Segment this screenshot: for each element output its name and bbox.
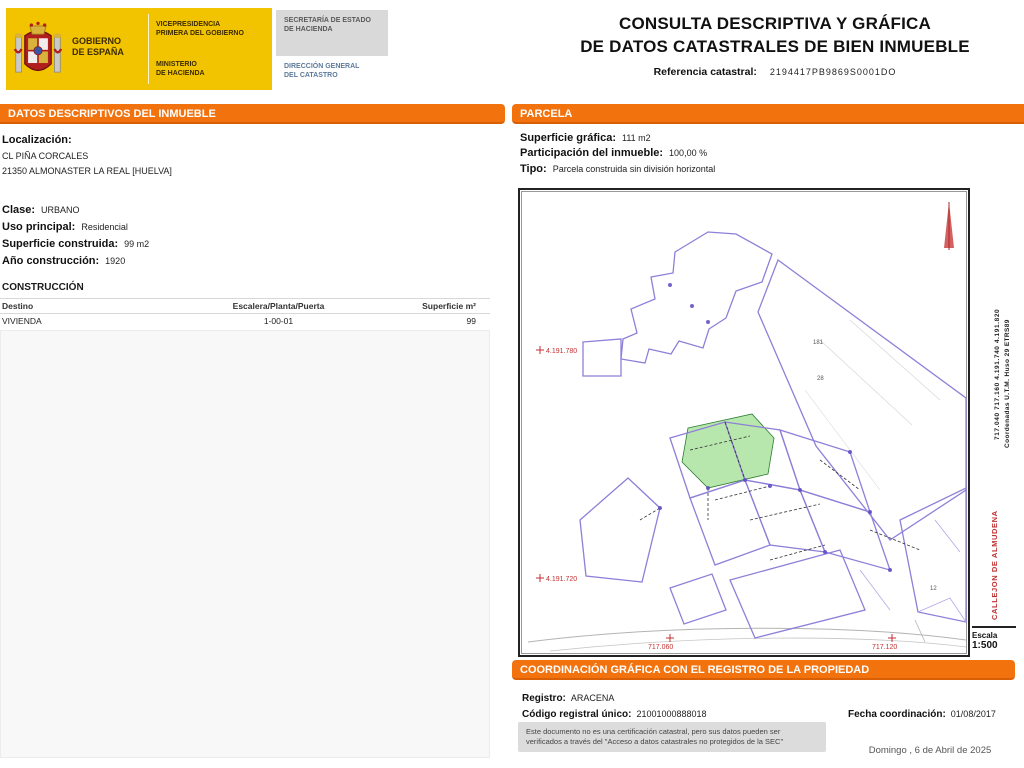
map-label-northing-lower: 4.191.720 (546, 576, 577, 583)
parcel-number-3: 12 (930, 586, 937, 592)
vicepresidencia-text: VICEPRESIDENCIA PRIMERA DEL GOBIERNO (156, 20, 244, 38)
street-side-label: CALLEJON DE ALMUDENA (990, 510, 999, 620)
section-bar-datos-descriptivos: DATOS DESCRIPTIVOS DEL INMUEBLE (0, 104, 505, 124)
spain-coat-of-arms-icon (12, 16, 64, 82)
col-superficie: Superficie m² (358, 301, 491, 311)
localizacion-label: Localización: (2, 134, 72, 146)
construccion-table: Destino Escalera/Planta/Puerta Superfici… (0, 298, 490, 328)
map-label-easting-right: 717.120 (872, 644, 897, 651)
field-tipo: Tipo:Parcela construida sin división hor… (520, 159, 715, 177)
scale-box: Escala 1:500 (972, 626, 1016, 651)
direccion-general-catastro-text: DIRECCIÓN GENERAL DEL CATASTRO (284, 62, 359, 80)
gobierno-espana-logo: GOBIERNO DE ESPAÑA VICEPRESIDENCIA PRIME… (6, 8, 272, 90)
parcel-number-1: 181 (813, 340, 824, 346)
parcel-number-2: 28 (817, 376, 824, 382)
field-clase: Clase:URBANO (2, 200, 80, 218)
map-label-easting-left: 717.060 (648, 644, 673, 651)
field-fecha-coordinacion: Fecha coordinación:01/08/2017 (848, 704, 996, 722)
cadastral-map-drawing: 181 28 12 4.191.780 4.191.720 717.060 71… (520, 190, 968, 655)
referencia-label: Referencia catastral: (654, 66, 757, 78)
cell-escalera: 1-00-01 (200, 316, 358, 326)
map-label-northing-upper: 4.191.780 (546, 348, 577, 355)
col-destino: Destino (0, 301, 200, 311)
construccion-table-header: Destino Escalera/Planta/Puerta Superfici… (0, 298, 490, 314)
field-superficie-construida: Superficie construida:99 m2 (2, 234, 149, 252)
ministerio-text: MINISTERIO DE HACIENDA (156, 60, 205, 78)
document-date: Domingo , 6 de Abril de 2025 (845, 745, 1015, 756)
field-uso-principal: Uso principal:Residencial (2, 217, 128, 235)
secretaria-estado-box: SECRETARÍA DE ESTADO DE HACIENDA (276, 10, 388, 56)
scale-value: 1:500 (972, 640, 1016, 651)
disclaimer-line-1: Este documento no es una certificación c… (526, 727, 818, 737)
localizacion-street: CL PIÑA CORCALES (2, 151, 88, 161)
empty-panel (0, 330, 490, 758)
section-bar-parcela: PARCELA (512, 104, 1024, 124)
utm-values-text: 717.040 717.160 4.191.740 4.191.820 (994, 309, 1001, 440)
section-bar-coordinacion: COORDINACIÓN GRÁFICA CON EL REGISTRO DE … (512, 660, 1015, 680)
col-escalera: Escalera/Planta/Puerta (200, 301, 358, 311)
catastro-document-page: GOBIERNO DE ESPAÑA VICEPRESIDENCIA PRIME… (0, 0, 1024, 768)
utm-coordinates-text: Coordenadas U.T.M. Huso 29 ETRS89 (1004, 319, 1011, 448)
map-margin-strip: Coordenadas U.T.M. Huso 29 ETRS89 717.04… (970, 188, 1024, 657)
table-row: VIVIENDA 1-00-01 99 (0, 314, 490, 328)
logo-divider (148, 14, 149, 84)
title-line-1: CONSULTA DESCRIPTIVA Y GRÁFICA (540, 12, 1010, 35)
cell-superficie: 99 (358, 316, 491, 326)
cell-destino: VIVIENDA (0, 316, 200, 326)
cadastral-map[interactable]: 181 28 12 4.191.780 4.191.720 717.060 71… (518, 188, 970, 657)
referencia-catastral: Referencia catastral: 2194417PB9869S0001… (540, 66, 1010, 78)
title-line-2: DE DATOS CATASTRALES DE BIEN INMUEBLE (540, 35, 1010, 58)
scale-label: Escala (972, 631, 1016, 640)
field-codigo-registral: Código registral único:21001000888018 (522, 704, 707, 722)
field-anio-construccion: Año construcción:1920 (2, 251, 125, 269)
disclaimer-line-2: verificados a través del "Acceso a datos… (526, 737, 818, 747)
localizacion-municipality: 21350 ALMONASTER LA REAL [HUELVA] (2, 166, 172, 176)
gobierno-text: GOBIERNO DE ESPAÑA (72, 36, 124, 58)
referencia-value: 2194417PB9869S0001DO (770, 67, 897, 77)
disclaimer-box: Este documento no es una certificación c… (518, 722, 826, 752)
document-title: CONSULTA DESCRIPTIVA Y GRÁFICA DE DATOS … (540, 12, 1010, 78)
construccion-title: CONSTRUCCIÓN (2, 282, 84, 293)
